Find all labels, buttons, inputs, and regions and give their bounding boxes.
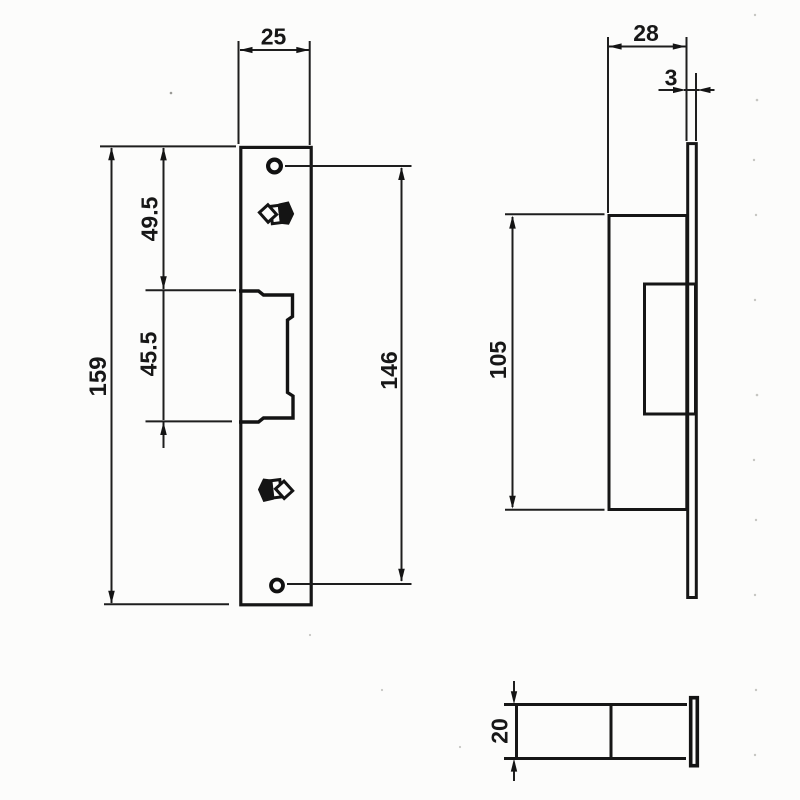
svg-text:105: 105 — [485, 341, 511, 380]
svg-text:20: 20 — [487, 718, 513, 744]
svg-text:159: 159 — [85, 356, 112, 396]
svg-text:49.5: 49.5 — [137, 196, 163, 241]
svg-text:3: 3 — [665, 65, 678, 91]
svg-text:45.5: 45.5 — [136, 331, 162, 376]
svg-text:28: 28 — [633, 20, 659, 46]
svg-text:146: 146 — [376, 351, 402, 389]
svg-text:25: 25 — [261, 24, 287, 50]
